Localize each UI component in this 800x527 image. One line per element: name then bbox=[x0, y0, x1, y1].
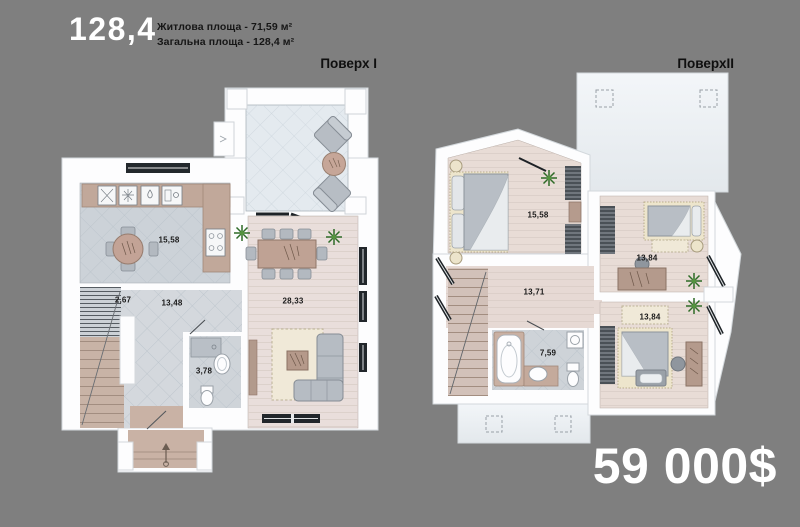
boiler-icon bbox=[141, 186, 159, 205]
room-area-label-hallway-f1: 13,48 bbox=[161, 299, 182, 308]
bathtub bbox=[494, 332, 524, 386]
living-room bbox=[234, 216, 367, 428]
cooktop-icon bbox=[206, 229, 225, 256]
washing-machine bbox=[191, 338, 221, 357]
side-wall bbox=[712, 196, 741, 410]
room-area-label-kitchen: 15,58 bbox=[158, 236, 179, 245]
stairs-floor2 bbox=[448, 268, 488, 396]
nightstand bbox=[691, 240, 703, 252]
entrance-porch bbox=[118, 430, 212, 470]
room-area-label-bathroom-f1: 3,78 bbox=[196, 367, 212, 376]
kitchen-counter bbox=[203, 184, 230, 272]
wall-jut bbox=[704, 287, 733, 302]
nightstand bbox=[450, 252, 462, 264]
dresser bbox=[569, 202, 581, 222]
living-area-line: Житлова площа - 71,59 м² bbox=[157, 20, 294, 35]
floor2-plan bbox=[433, 73, 741, 443]
toilet bbox=[567, 363, 579, 387]
room-area-label-stairs: 2,67 bbox=[115, 296, 131, 305]
coffee-table bbox=[287, 351, 308, 370]
room-area-label-living-room: 28,33 bbox=[282, 297, 303, 306]
floor1-label: Поверх I bbox=[320, 56, 377, 71]
bedroom-left bbox=[448, 140, 581, 264]
porch-pillar bbox=[197, 442, 212, 470]
terrace-pillar bbox=[345, 89, 366, 114]
toilet bbox=[201, 386, 213, 406]
bathroom-floor2 bbox=[492, 321, 584, 390]
terrace-round-table bbox=[323, 153, 346, 176]
total-area-line: Загальна площа - 128,4 м² bbox=[157, 35, 294, 50]
total-area-headline: 128,4 bbox=[69, 11, 157, 48]
bed bbox=[618, 328, 672, 388]
room-area-label-hallway-f2: 13,71 bbox=[523, 288, 544, 297]
corner-sink bbox=[567, 332, 583, 348]
floorplan-poster: 128,4 Житлова площа - 71,59 м² Загальна … bbox=[0, 0, 800, 527]
floor2-label: ПоверхII bbox=[677, 56, 734, 71]
entry-mat bbox=[130, 406, 183, 428]
bed bbox=[450, 160, 508, 264]
grill-table bbox=[214, 122, 234, 156]
nightstand bbox=[450, 160, 462, 172]
tv-stand bbox=[249, 340, 257, 395]
room-area-label-bedroom-left: 15,58 bbox=[527, 211, 548, 220]
price-text: 59 000$ bbox=[593, 437, 777, 495]
porch-pillar bbox=[118, 442, 133, 470]
floor1-plan bbox=[62, 88, 378, 472]
terrace-pillar bbox=[345, 197, 366, 214]
bed bbox=[644, 202, 704, 240]
roof-bottom bbox=[458, 402, 590, 443]
terrace-pillar bbox=[227, 89, 247, 109]
rug bbox=[652, 240, 688, 252]
bathroom-sink bbox=[524, 366, 558, 386]
bedroom-top-right bbox=[600, 196, 708, 292]
room-area-label-bedroom-top-right: 13,84 bbox=[636, 254, 657, 263]
room-area-label-bathroom-f2: 7,59 bbox=[540, 349, 556, 358]
area-info: Житлова площа - 71,59 м² Загальна площа … bbox=[157, 20, 294, 50]
roof-top bbox=[577, 73, 728, 192]
room-area-label-bedroom-bottom-right: 13,84 bbox=[639, 313, 660, 322]
